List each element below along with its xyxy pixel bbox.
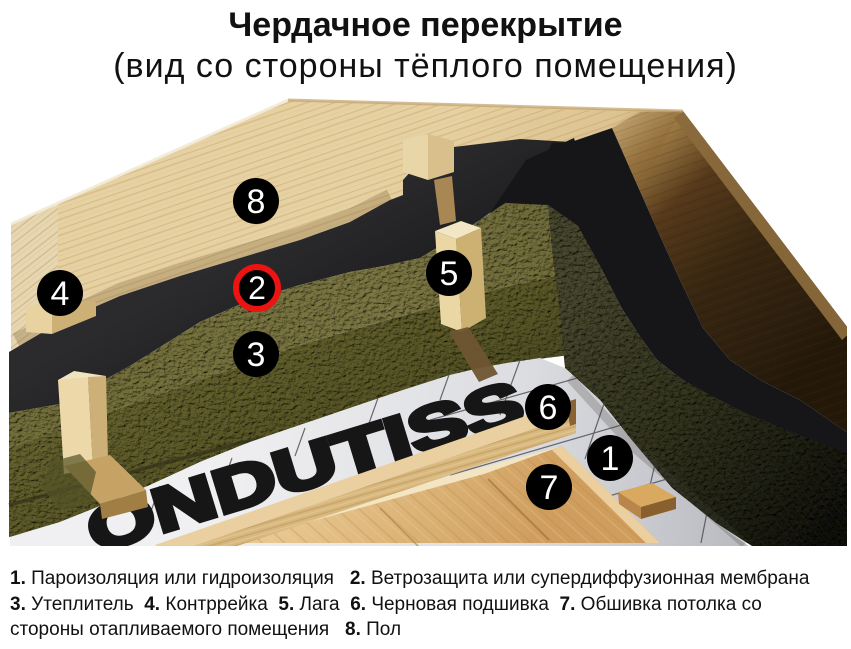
svg-text:5: 5 bbox=[440, 255, 459, 293]
svg-text:2: 2 bbox=[248, 270, 266, 306]
svg-text:1: 1 bbox=[601, 440, 620, 478]
svg-text:3: 3 bbox=[247, 336, 266, 374]
svg-text:6: 6 bbox=[539, 389, 558, 427]
svg-text:4: 4 bbox=[51, 275, 70, 313]
svg-text:7: 7 bbox=[540, 469, 559, 507]
svg-text:8: 8 bbox=[247, 183, 266, 221]
